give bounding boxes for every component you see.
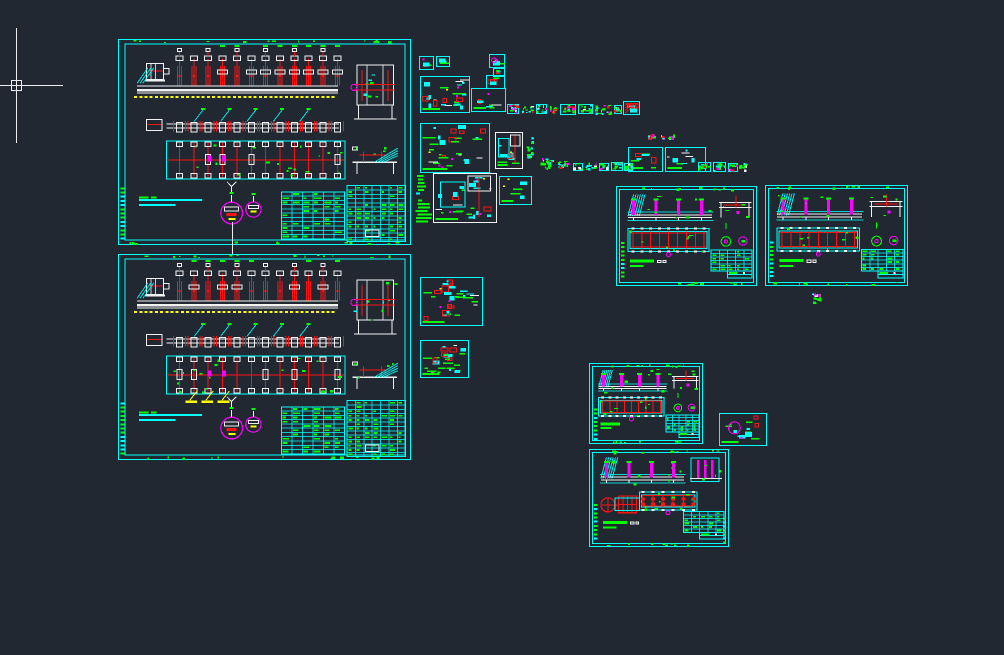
part-thumbnail-2[interactable] <box>521 105 534 114</box>
detail-leader-line <box>232 222 233 254</box>
drawing-part-detail-9[interactable] <box>420 123 490 173</box>
crosshair-horizontal-line <box>0 85 63 86</box>
part-thumbnail-20[interactable] <box>739 163 748 172</box>
drawing-conveyor-sheet-4[interactable] <box>589 449 729 547</box>
part-thumbnail-13[interactable] <box>585 162 597 171</box>
part-thumbnail-5[interactable] <box>560 104 576 115</box>
part-thumbnail-4[interactable] <box>549 106 558 114</box>
drawing-text-blob-column[interactable] <box>415 174 433 226</box>
drawing-part-detail-10[interactable] <box>495 132 523 169</box>
drawing-part-detail-6[interactable] <box>420 76 470 113</box>
part-thumbnail-1[interactable] <box>507 104 519 114</box>
part-thumbnail-9[interactable] <box>526 132 534 160</box>
part-thumbnail-17[interactable] <box>698 162 711 172</box>
crosshair-pickbox <box>11 80 22 91</box>
part-thumbnail-12[interactable] <box>573 163 583 171</box>
drawing-part-detail-3[interactable] <box>489 54 505 68</box>
part-thumbnail-15[interactable] <box>611 162 623 171</box>
drawing-part-detail-7[interactable] <box>471 88 506 112</box>
part-thumbnail-18[interactable] <box>713 162 726 172</box>
annotation-mark-4 <box>812 291 822 305</box>
part-thumbnail-14[interactable] <box>599 163 609 171</box>
drawing-part-detail-11[interactable] <box>628 147 663 172</box>
drawing-conveyor-sheet-1[interactable] <box>616 186 757 286</box>
drawing-part-detail-1[interactable] <box>419 56 434 70</box>
cad-model-space[interactable] <box>0 0 1004 655</box>
part-thumbnail-8[interactable] <box>614 105 622 114</box>
annotation-mark-3 <box>667 134 675 141</box>
drawing-part-detail-14[interactable] <box>499 176 532 205</box>
part-thumbnail-3[interactable] <box>536 104 547 114</box>
drawing-assembly-sheet-1[interactable] <box>118 39 411 245</box>
part-thumbnail-6[interactable] <box>578 104 593 114</box>
part-thumbnail-7[interactable] <box>595 104 612 115</box>
part-thumbnail-16[interactable] <box>624 163 633 171</box>
annotation-mark-1 <box>648 133 657 140</box>
part-thumbnail-19[interactable] <box>728 163 738 172</box>
drawing-conveyor-sheet-3[interactable] <box>589 363 703 444</box>
drawing-part-detail-17[interactable] <box>719 413 767 446</box>
drawing-part-detail-2[interactable] <box>436 56 450 67</box>
drawing-part-detail-16[interactable] <box>420 340 469 378</box>
drawing-part-detail-15[interactable] <box>420 277 483 326</box>
drawing-assembly-sheet-2[interactable] <box>118 254 411 460</box>
drawing-conveyor-sheet-2[interactable] <box>765 185 908 286</box>
annotation-mark-2 <box>660 134 665 140</box>
part-thumbnail-11[interactable] <box>556 160 570 170</box>
drawing-part-detail-13[interactable] <box>433 173 497 223</box>
drawing-part-detail-8[interactable] <box>623 101 640 115</box>
drawing-part-detail-5[interactable] <box>486 75 505 89</box>
part-thumbnail-10[interactable] <box>538 158 554 170</box>
